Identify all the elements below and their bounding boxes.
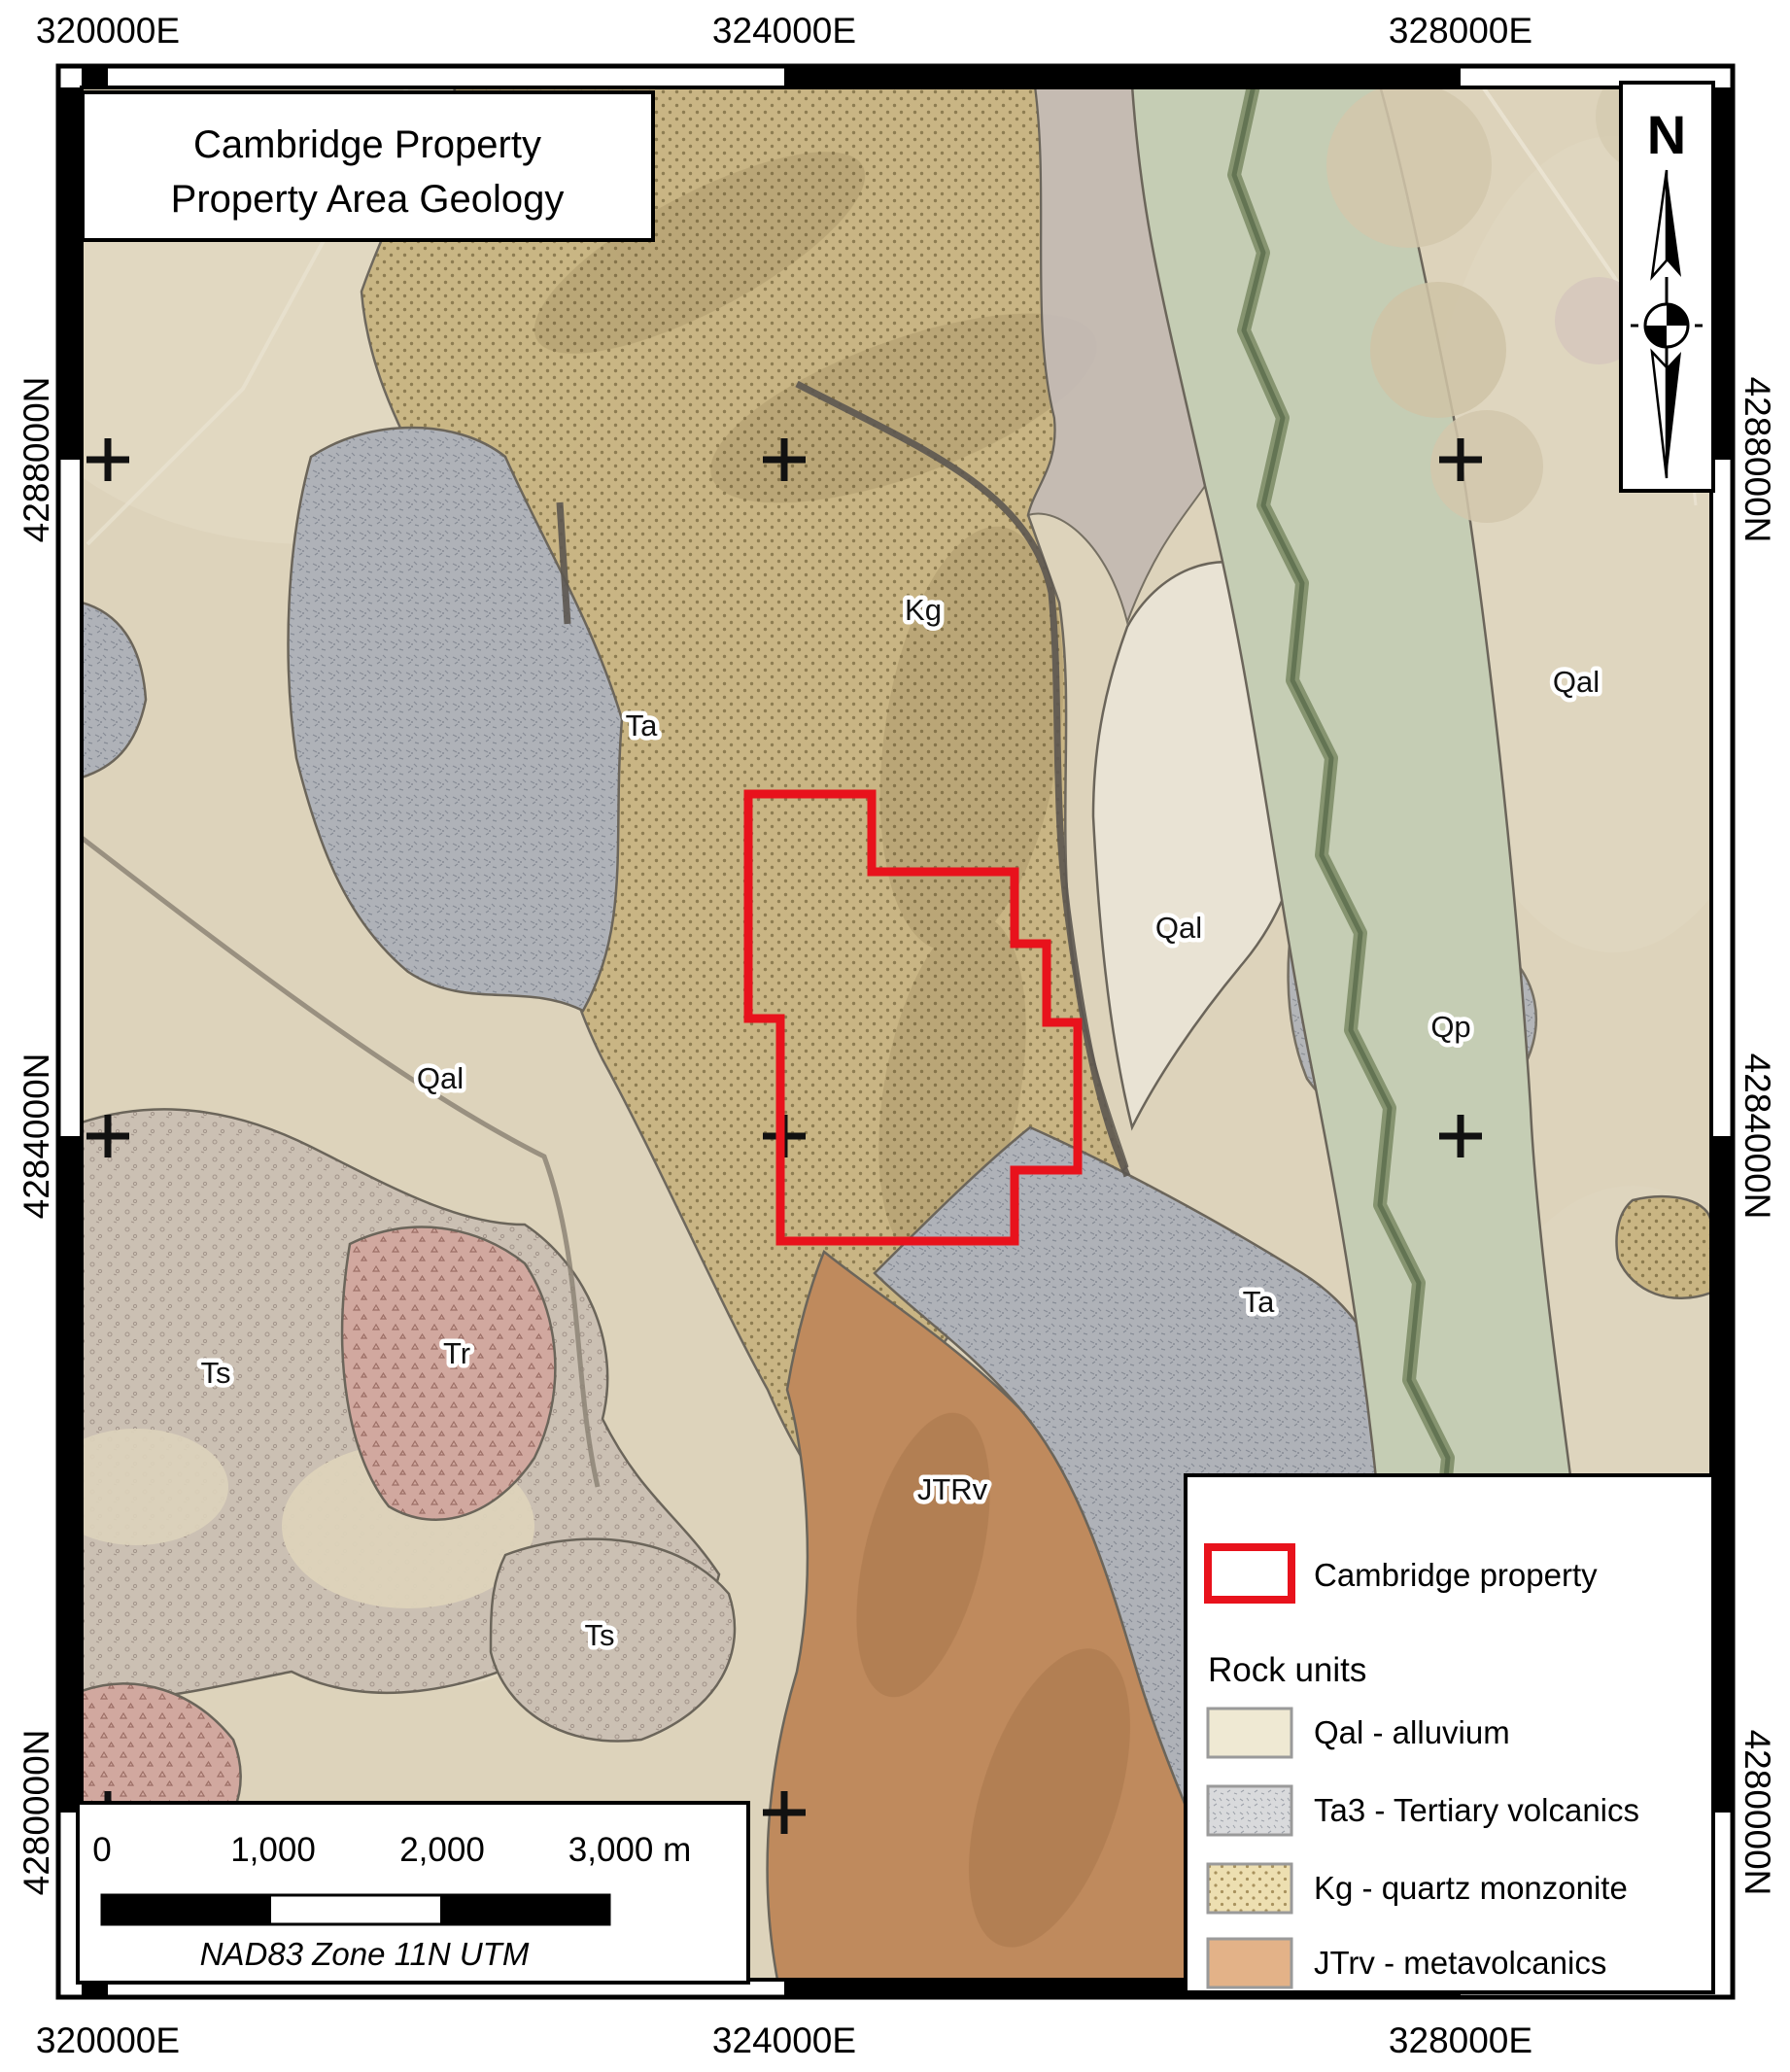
- easting-label-top-3: 328000E: [1389, 11, 1532, 51]
- unit-label-qal-mid: Qal: [1155, 911, 1202, 945]
- legend: Cambridge property Rock units Qal - allu…: [1186, 1475, 1713, 1992]
- easting-label-bottom-1: 320000E: [36, 2020, 180, 2060]
- northing-label-left-2: 4284000N: [17, 1053, 56, 1220]
- title-box: Cambridge Property Property Area Geology: [83, 92, 653, 240]
- legend-swatch-qal: [1208, 1709, 1291, 1757]
- northing-label-left-1: 4288000N: [17, 377, 56, 543]
- unit-label-qal-east: Qal: [1553, 665, 1600, 699]
- scalebar-tick-1000: 1,000: [230, 1831, 316, 1869]
- unit-label-jtrv: JTRv: [917, 1472, 988, 1506]
- unit-label-ta-upper: Ta: [626, 708, 659, 742]
- unit-label-kg: Kg: [905, 593, 942, 627]
- unit-label-tr: Tr: [443, 1336, 470, 1370]
- easting-label-bottom-3: 328000E: [1389, 2020, 1532, 2060]
- northing-label-right-3: 4280000N: [1738, 1730, 1777, 1896]
- northing-label-right-1: 4288000N: [1738, 377, 1777, 543]
- legend-item-jtrv: JTrv - metavolcanics: [1314, 1945, 1606, 1981]
- scalebar-tick-2000: 2,000: [399, 1831, 485, 1869]
- map-title-line2: Property Area Geology: [171, 178, 565, 221]
- legend-swatch-jtrv: [1208, 1939, 1291, 1987]
- northing-label-right-2: 4284000N: [1738, 1053, 1777, 1220]
- unit-label-ts-small: Ts: [585, 1618, 615, 1652]
- legend-swatch-kg: [1208, 1864, 1291, 1913]
- legend-rock-units-heading: Rock units: [1208, 1651, 1366, 1689]
- easting-label-bottom-2: 324000E: [712, 2020, 856, 2060]
- legend-property-label: Cambridge property: [1314, 1557, 1598, 1593]
- unit-label-qal-west: Qal: [417, 1061, 464, 1095]
- legend-item-kg: Kg - quartz monzonite: [1314, 1870, 1628, 1906]
- geology-map-page: Kg Ta Qal Qal Qp Qal Ta Tr Ts Ts JTRv: [0, 0, 1790, 2067]
- unit-label-qp: Qp: [1430, 1010, 1470, 1044]
- easting-label-top-2: 324000E: [712, 11, 856, 51]
- scalebar-tick-0: 0: [92, 1831, 111, 1869]
- unit-label-ta-lower: Ta: [1243, 1285, 1276, 1319]
- easting-label-top-1: 320000E: [36, 11, 180, 51]
- map-title-line1: Cambridge Property: [193, 123, 541, 166]
- scalebar-segment-1: [102, 1895, 271, 1924]
- scalebar: 0 1,000 2,000 3,000 m NAD83 Zone 11N UTM: [78, 1803, 748, 1983]
- northing-label-left-3: 4280000N: [17, 1730, 56, 1896]
- legend-item-qal: Qal - alluvium: [1314, 1714, 1510, 1750]
- scalebar-datum: NAD83 Zone 11N UTM: [200, 1936, 530, 1972]
- legend-swatch-ta3: [1208, 1786, 1291, 1835]
- north-arrow: N: [1621, 83, 1713, 491]
- scalebar-segment-3: [440, 1895, 609, 1924]
- map-canvas: Kg Ta Qal Qal Qp Qal Ta Tr Ts Ts JTRv: [0, 0, 1790, 2067]
- unit-label-ts: Ts: [201, 1356, 231, 1390]
- legend-item-ta3: Ta3 - Tertiary volcanics: [1314, 1792, 1639, 1828]
- north-arrow-label: N: [1647, 104, 1686, 165]
- scalebar-tick-3000: 3,000 m: [568, 1831, 691, 1869]
- legend-swatch-property: [1208, 1547, 1291, 1600]
